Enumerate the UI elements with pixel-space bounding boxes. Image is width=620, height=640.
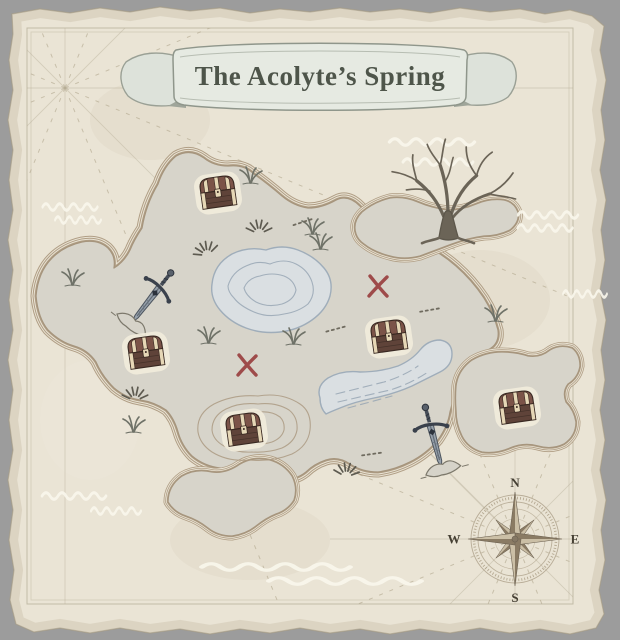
title-banner: The Acolyte’s Spring xyxy=(121,43,516,110)
treasure-chest-icon[interactable] xyxy=(363,314,414,360)
lake-west xyxy=(212,247,331,333)
treasure-map-canvas: N E S W The Acolyte’s Spring xyxy=(0,0,620,640)
map-title: The Acolyte’s Spring xyxy=(195,61,446,91)
compass-label-east: E xyxy=(571,532,580,547)
treasure-chest-icon[interactable] xyxy=(192,170,243,216)
treasure-chest-icon[interactable] xyxy=(218,407,269,453)
compass-label-west: W xyxy=(448,532,461,547)
treasure-map-screen: N E S W The Acolyte’s Spring xyxy=(0,0,620,640)
treasure-chest-icon[interactable] xyxy=(120,330,171,376)
compass-label-north: N xyxy=(510,475,520,490)
compass-label-south: S xyxy=(511,590,518,605)
treasure-chest-icon[interactable] xyxy=(491,385,542,431)
